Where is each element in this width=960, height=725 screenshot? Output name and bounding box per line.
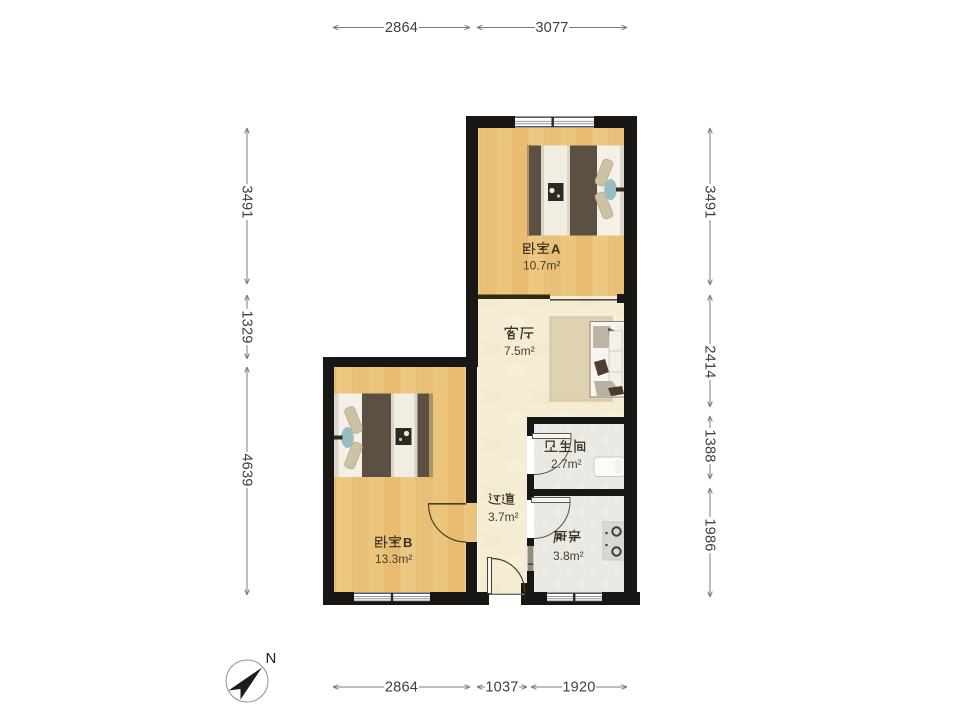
- svg-text:1037: 1037: [485, 679, 518, 695]
- svg-text:3.8m²: 3.8m²: [553, 549, 584, 563]
- svg-text:3.7m²: 3.7m²: [488, 510, 519, 524]
- svg-text:3491: 3491: [239, 185, 255, 218]
- svg-text:10.7m²: 10.7m²: [523, 259, 560, 273]
- svg-text:3077: 3077: [535, 20, 568, 36]
- svg-text:N: N: [266, 650, 277, 667]
- svg-text:1388: 1388: [702, 429, 718, 462]
- svg-text:2864: 2864: [385, 20, 418, 36]
- svg-text:1920: 1920: [562, 679, 595, 695]
- svg-text:A: A: [551, 242, 561, 257]
- svg-text:2.7m²: 2.7m²: [551, 457, 582, 471]
- svg-text:1986: 1986: [702, 518, 718, 551]
- svg-text:1329: 1329: [239, 310, 255, 343]
- svg-text:2414: 2414: [702, 345, 718, 378]
- svg-text:B: B: [403, 535, 412, 550]
- svg-text:2864: 2864: [385, 679, 418, 695]
- svg-text:13.3m²: 13.3m²: [375, 552, 412, 566]
- svg-text:4639: 4639: [239, 453, 255, 486]
- svg-text:3491: 3491: [702, 185, 718, 218]
- svg-text:7.5m²: 7.5m²: [504, 344, 535, 358]
